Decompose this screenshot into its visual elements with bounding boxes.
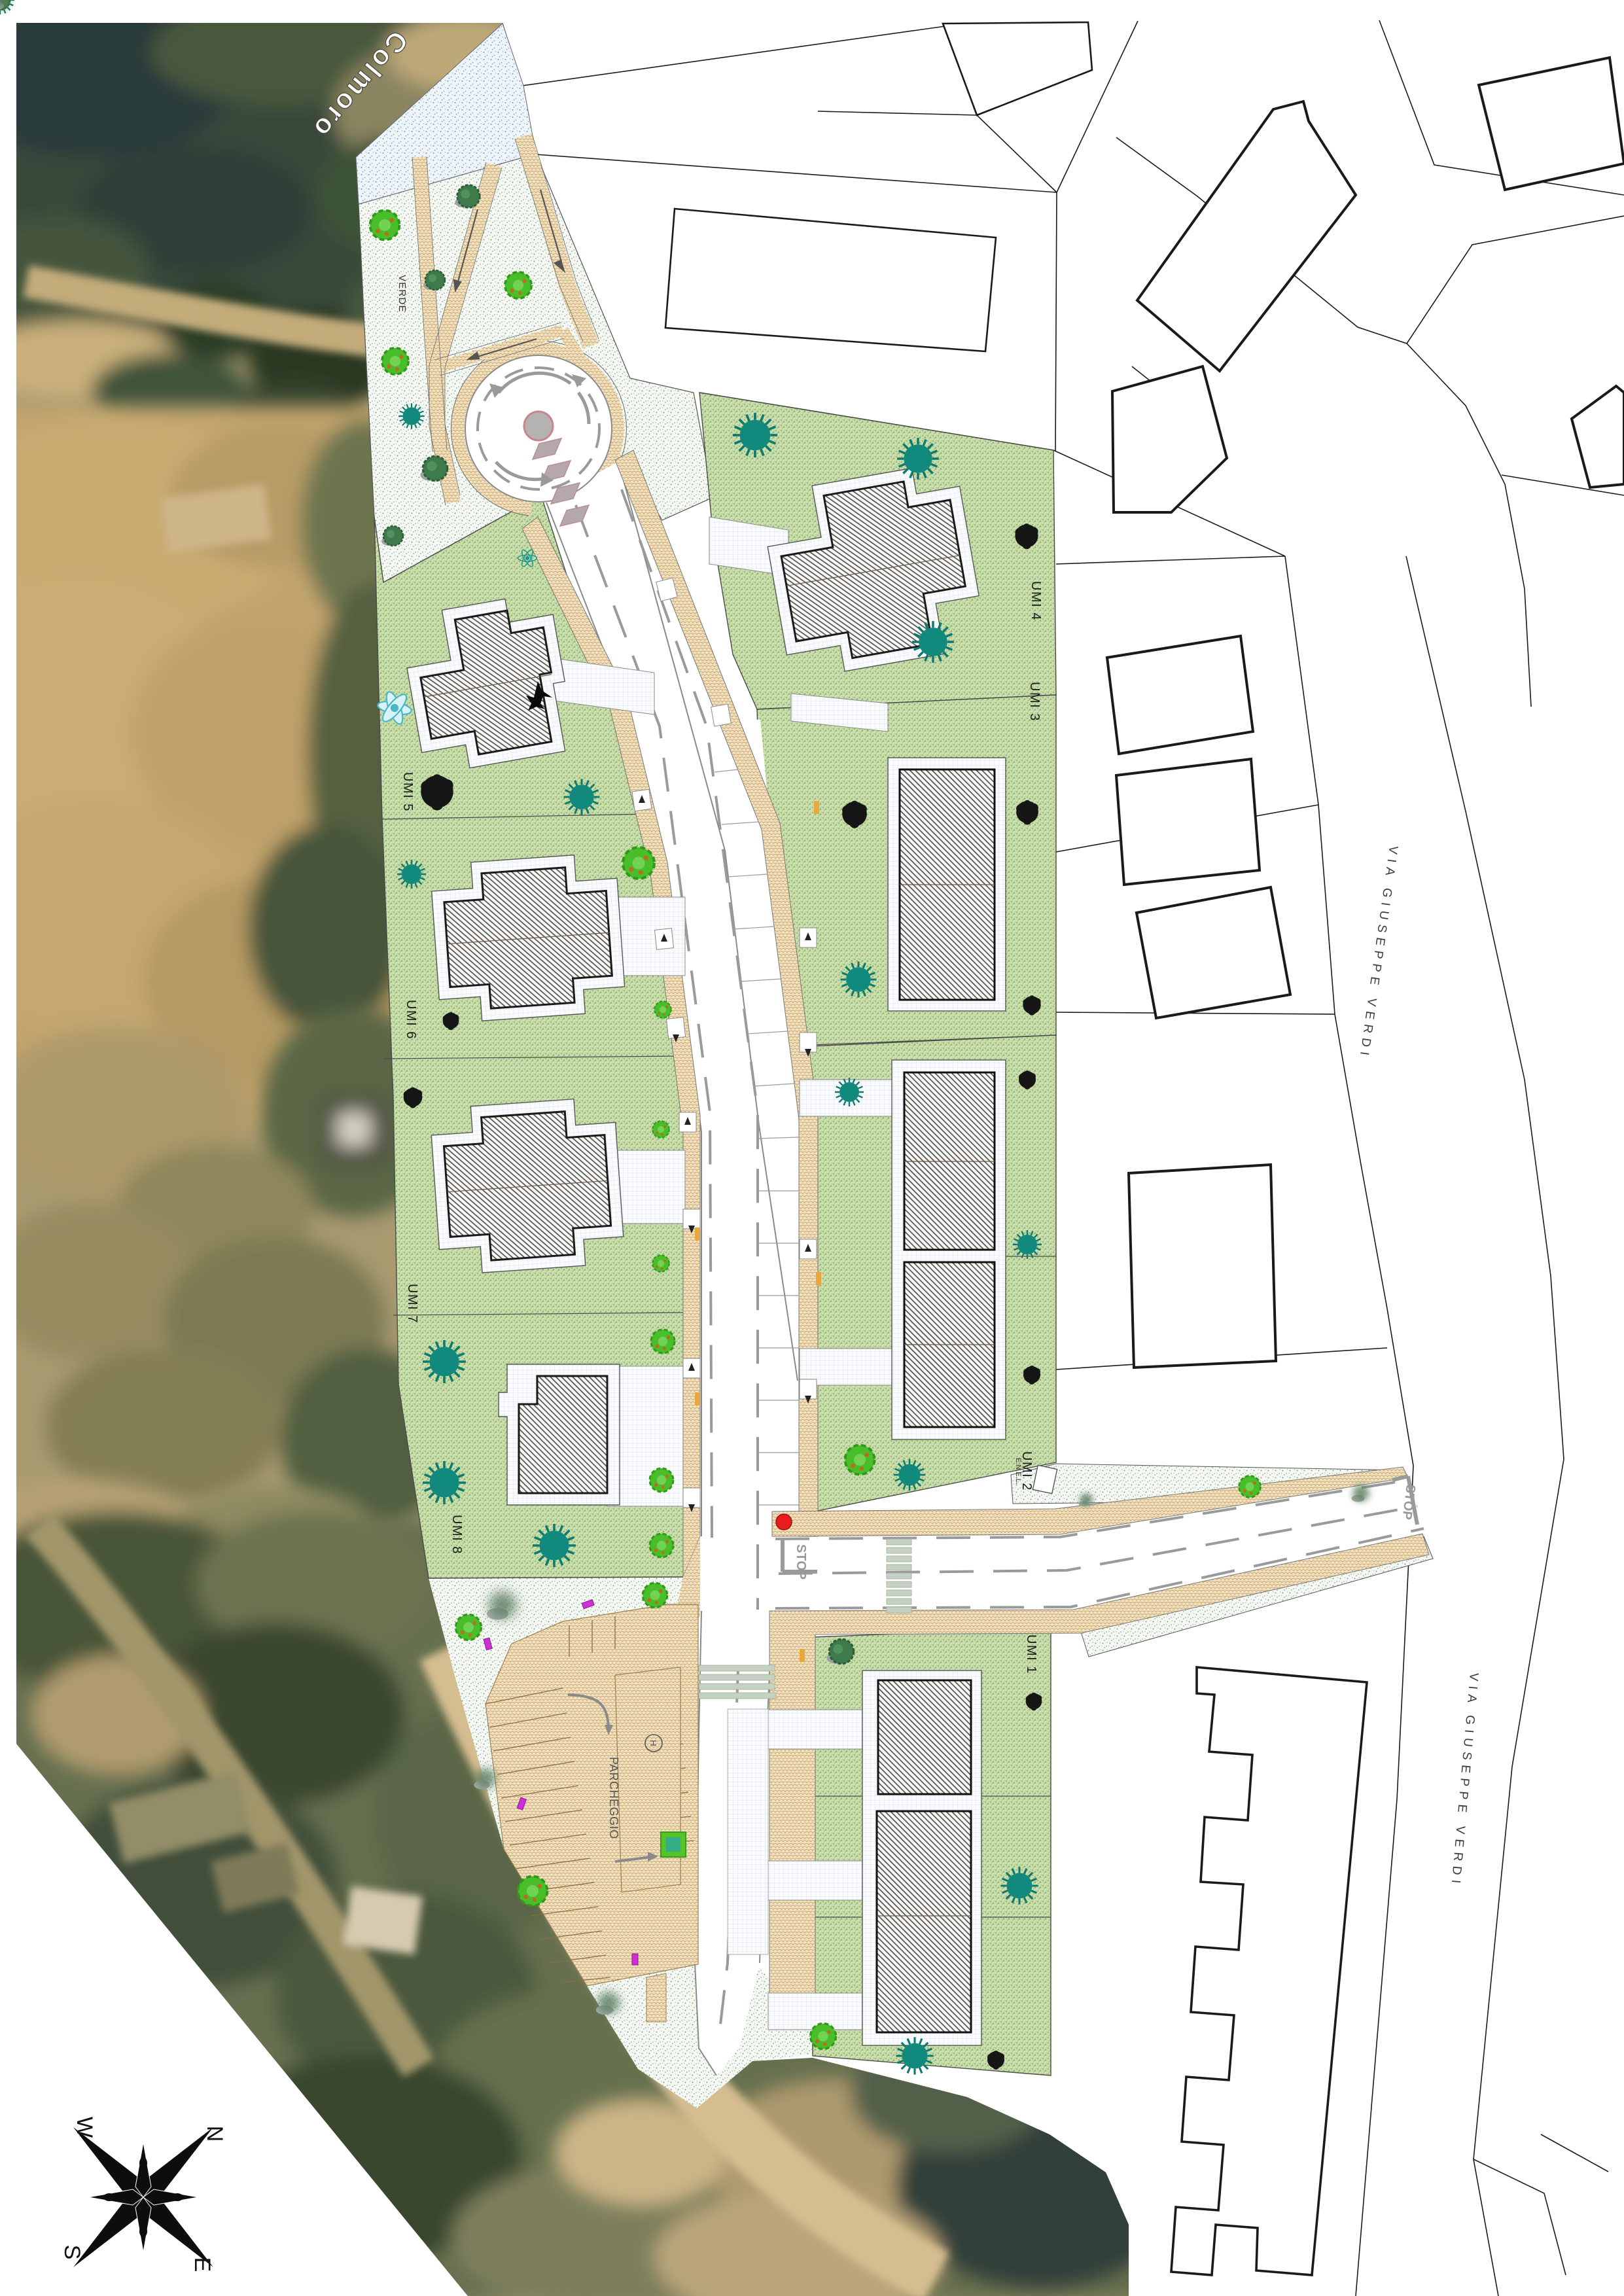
svg-text:PARCHEGGIO: PARCHEGGIO	[607, 1757, 620, 1839]
svg-text:UMI 5: UMI 5	[400, 772, 415, 812]
svg-text:UMI 6: UMI 6	[404, 1000, 418, 1040]
svg-text:UMI 3: UMI 3	[1027, 682, 1042, 722]
svg-text:N: N	[202, 2126, 227, 2142]
svg-text:UMI 8: UMI 8	[450, 1515, 464, 1555]
svg-text:UMI 1: UMI 1	[1024, 1634, 1038, 1674]
svg-text:UMI 7: UMI 7	[405, 1284, 419, 1324]
svg-text:UMI 2: UMI 2	[1019, 1451, 1034, 1491]
svg-text:E: E	[190, 2257, 215, 2272]
svg-text:UMI 4: UMI 4	[1029, 581, 1043, 621]
svg-text:H: H	[648, 1740, 658, 1746]
svg-text:W: W	[72, 2117, 97, 2138]
svg-text:STOP: STOP	[794, 1544, 808, 1580]
svg-text:VERDE: VERDE	[397, 275, 408, 313]
svg-text:S: S	[60, 2245, 84, 2260]
